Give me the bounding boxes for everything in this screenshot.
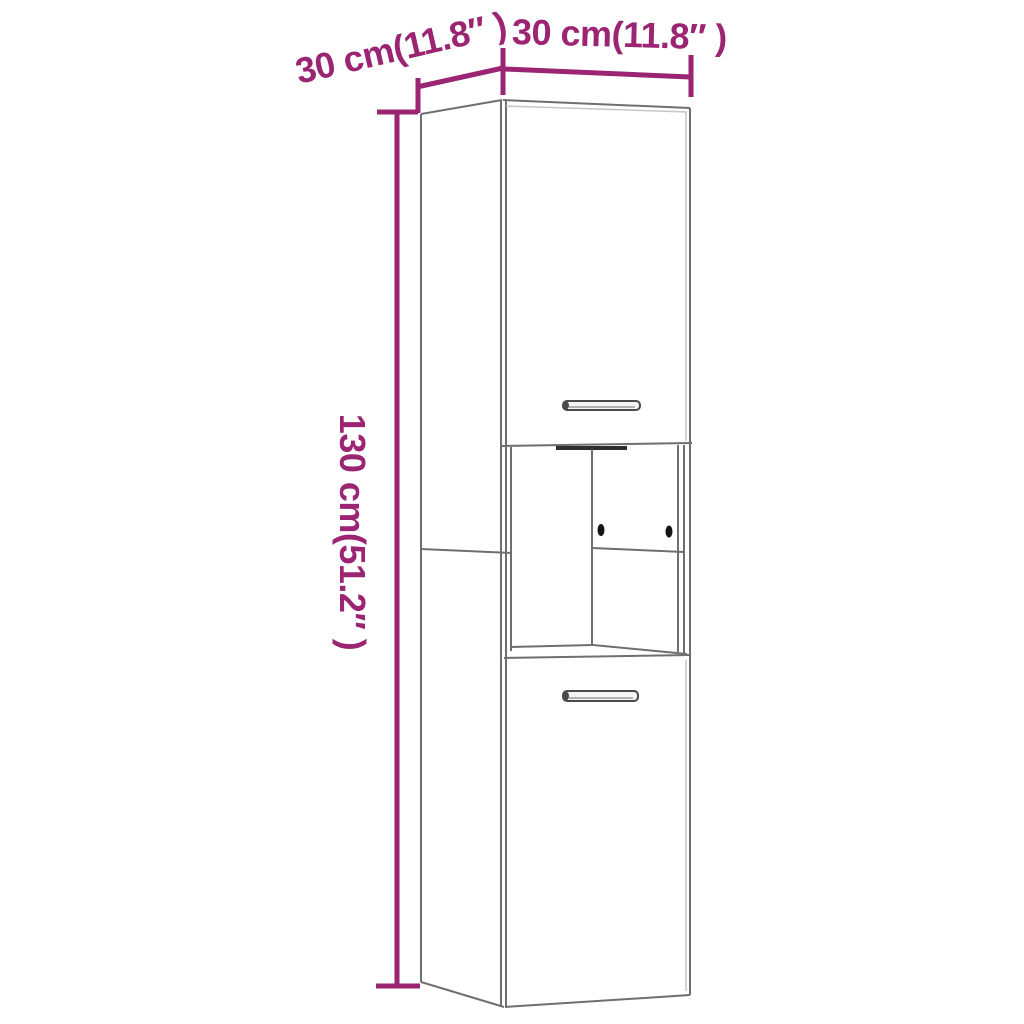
upper-door: [501, 401, 692, 448]
lower-door-top-edge: [504, 655, 690, 658]
width-dimension-label: 30 cm(11.8″ ): [511, 12, 744, 58]
height-dimension-label: 130 cm(51.2″ ): [332, 404, 372, 660]
shelf-floor-right-edge: [593, 645, 687, 654]
lower-door: [504, 655, 690, 701]
side-panel-mid-seam: [421, 549, 511, 553]
shelf-pin-dot-left: [598, 524, 605, 536]
upper-door-bottom-edge: [501, 443, 692, 446]
diagram-canvas: 30 cm(11.8″ ) 30 cm(11.8″ ) 130 cm(51.2″…: [0, 0, 1024, 1024]
dimension-lines: [376, 48, 691, 986]
shelf-pin-holes: [598, 524, 673, 538]
width-dimension-line: [504, 69, 690, 77]
front-bottom-edge: [505, 995, 690, 1007]
shelf-floor-back-edge: [510, 645, 593, 647]
upper-door-handle-icon: [563, 401, 640, 410]
lower-door-handle-icon: [563, 691, 638, 701]
cabinet-outline: [421, 100, 690, 1007]
open-shelf-compartment: [510, 445, 687, 654]
height-dimension: [376, 112, 420, 986]
side-panel-bottom-edge: [421, 982, 504, 1007]
depth-dimension-line: [417, 68, 503, 87]
side-panel-top-edge: [421, 100, 502, 114]
shelf-back-seam: [592, 548, 684, 552]
cabinet-line-drawing: [0, 0, 1024, 1024]
shelf-pin-dot-right: [666, 526, 673, 538]
